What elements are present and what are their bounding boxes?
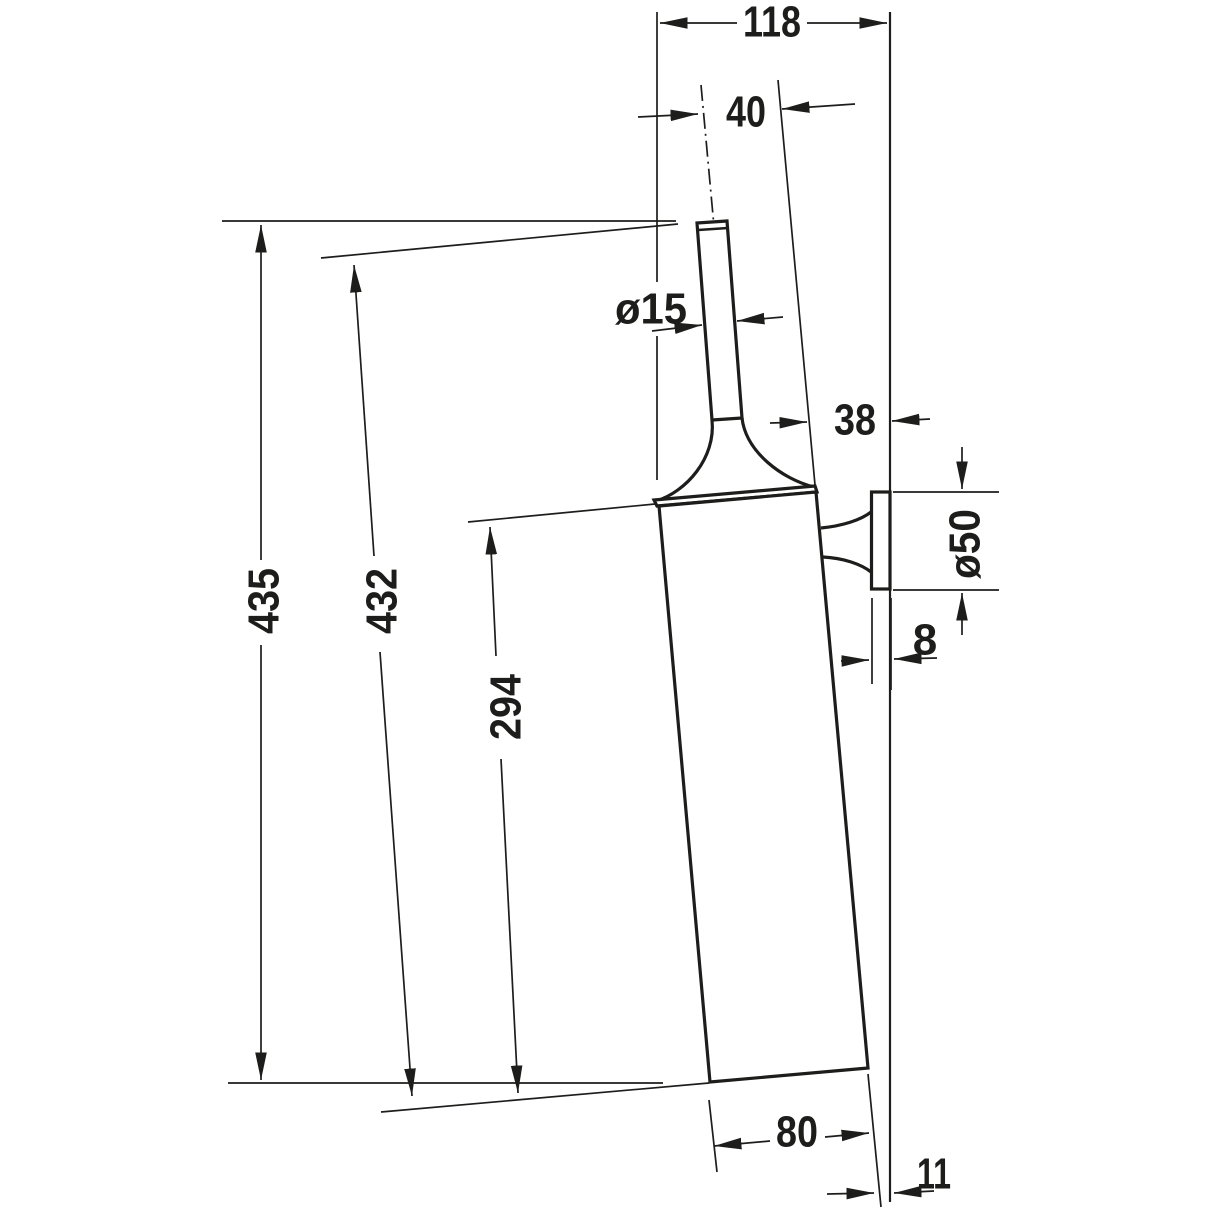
dim-label-38: 38	[834, 396, 876, 445]
technical-drawing-canvas: 118 40 ø15 38 ø50 8 435 432 294 80 11	[0, 0, 1214, 1214]
canister-body	[659, 492, 868, 1082]
dim-8-arrow-left	[841, 660, 869, 661]
dimension-labels: 118 40 ø15 38 ø50 8 435 432 294 80 11	[240, 0, 990, 1199]
dim-38-arrow-left	[770, 422, 807, 423]
dim-38-arrow-right	[892, 419, 930, 421]
brush-handle-flare-right	[742, 418, 814, 487]
ext-line-80-left	[709, 1100, 717, 1172]
dim-80-arrow-left	[714, 1141, 770, 1146]
dim-label-diameter-50: ø50	[941, 509, 990, 579]
ext-line-bottom-slanted	[381, 1083, 709, 1112]
dim-11-arrow-left	[827, 1193, 874, 1194]
dim-label-80: 80	[776, 1108, 818, 1157]
ext-line-294-top-slanted	[468, 504, 655, 522]
dim-label-8: 8	[913, 616, 937, 665]
brush-handle-shaft	[697, 221, 742, 420]
dim-label-diameter-15: ø15	[615, 285, 687, 334]
wall-mount-plate	[872, 492, 891, 589]
dim-294-arrow-bottom	[501, 759, 518, 1093]
dim-15-arrow-right	[737, 317, 783, 321]
ext-line-canister-right-extension	[868, 1074, 881, 1207]
brush-object	[654, 221, 890, 1082]
dim-432-arrow-top	[354, 265, 374, 556]
dim-432-arrow-bottom	[380, 652, 412, 1096]
ext-line-432-top-slanted	[321, 224, 678, 258]
dim-label-432: 432	[358, 568, 407, 634]
dim-294-arrow-top	[490, 527, 496, 656]
dim-label-40: 40	[726, 88, 766, 137]
dim-label-118: 118	[743, 0, 801, 47]
dim-40-arrow-right	[782, 104, 855, 109]
dim-label-294: 294	[482, 674, 531, 740]
dimension-drawing-toilet-brush: 118 40 ø15 38 ø50 8 435 432 294 80 11	[0, 0, 1214, 1214]
brush-handle-flare-left	[656, 420, 712, 501]
dim-80-arrow-right	[825, 1133, 869, 1137]
extension-lines	[222, 12, 999, 1207]
dim-label-435: 435	[240, 568, 289, 634]
dim-label-11: 11	[917, 1150, 951, 1199]
ext-line-corner-right-slanted	[778, 80, 815, 485]
dim-40-arrow-left	[638, 114, 698, 117]
wall-mount-connector-bottom	[823, 557, 871, 572]
wall-mount-connector-top	[821, 512, 871, 528]
